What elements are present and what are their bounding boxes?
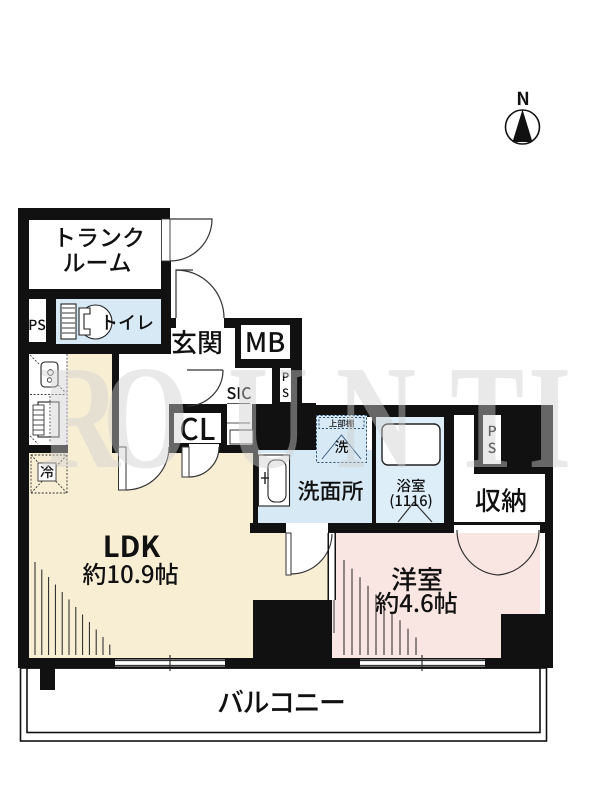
svg-text:T: T: [450, 336, 524, 500]
svg-text:U: U: [228, 336, 308, 500]
svg-text:I: I: [528, 336, 571, 500]
svg-text:N: N: [336, 336, 416, 500]
svg-text:O: O: [103, 336, 189, 500]
